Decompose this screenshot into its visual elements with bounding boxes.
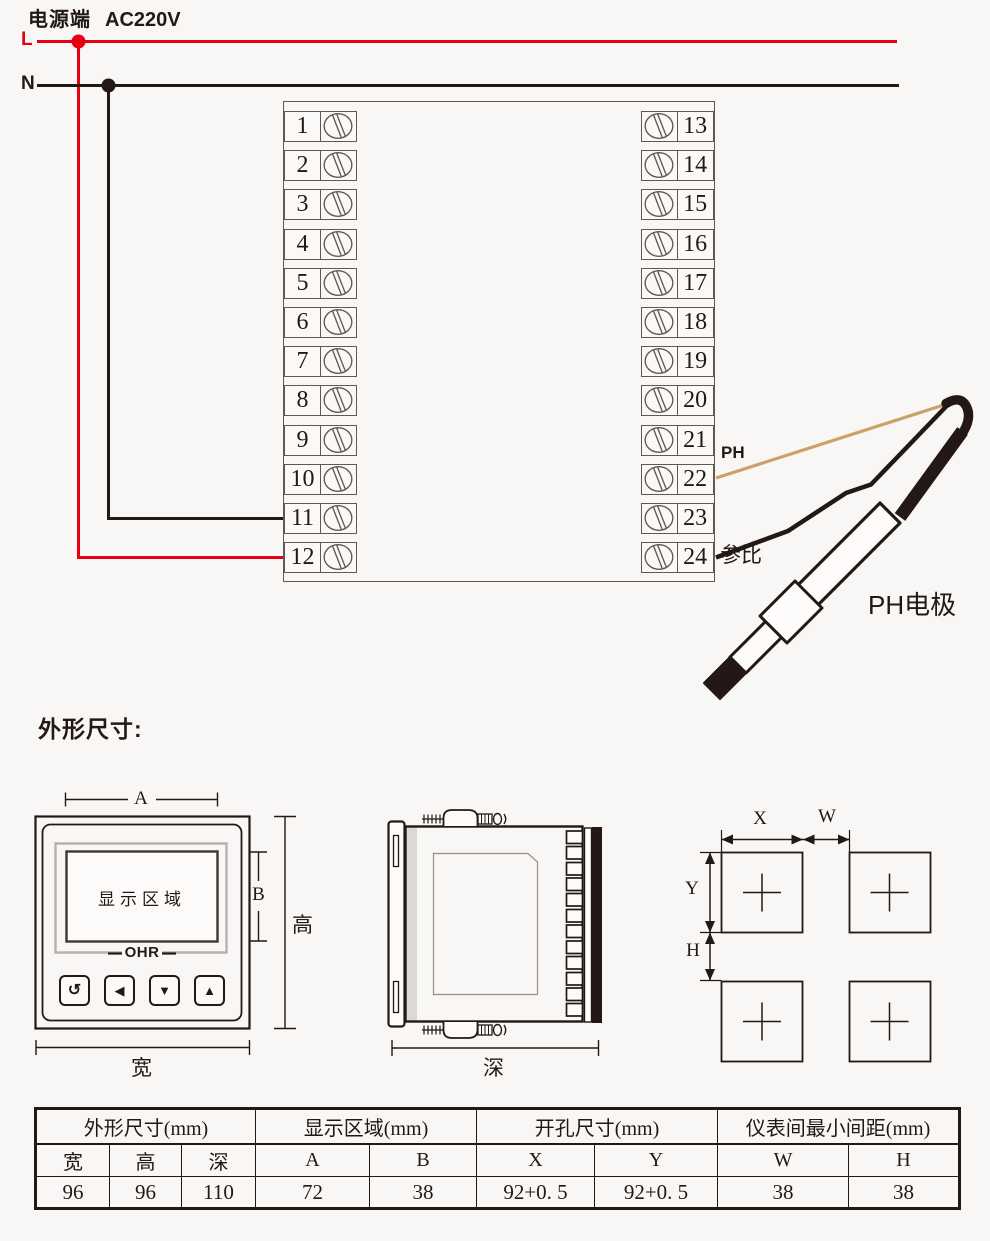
screw-icon (641, 464, 678, 495)
terminal-number: 7 (284, 346, 321, 377)
terminal-number: 5 (284, 268, 321, 299)
col-b: B (370, 1144, 477, 1177)
left-button-icon: ◀ (104, 975, 135, 1006)
val-width: 96 (36, 1177, 110, 1209)
terminal-number: 13 (677, 111, 714, 142)
terminal-number: 1 (284, 111, 321, 142)
col-width: 宽 (36, 1144, 110, 1177)
screw-icon (320, 542, 357, 573)
terminal-number: 6 (284, 307, 321, 338)
screw-icon (641, 385, 678, 416)
power-voltage-text: AC220V (105, 9, 181, 31)
val-a: 72 (256, 1177, 370, 1209)
dim-w-label: W (818, 806, 836, 828)
terminal-number: 12 (284, 542, 321, 573)
screw-icon (641, 111, 678, 142)
terminal-number: 18 (677, 307, 714, 338)
terminal-row: 19 (641, 346, 714, 377)
terminal-row: 9 (284, 425, 357, 456)
terminal-number: 11 (284, 503, 321, 534)
spec-table: 外形尺寸(mm) 显示区域(mm) 开孔尺寸(mm) 仪表间最小间距(mm) 宽… (34, 1107, 961, 1210)
terminal-row: 4 (284, 229, 357, 260)
terminal-number: 8 (284, 385, 321, 416)
screw-icon (320, 385, 357, 416)
table-group-header-row: 外形尺寸(mm) 显示区域(mm) 开孔尺寸(mm) 仪表间最小间距(mm) (36, 1109, 960, 1145)
col-y: Y (595, 1144, 718, 1177)
terminal-row: 17 (641, 268, 714, 299)
col-height: 高 (110, 1144, 182, 1177)
screw-icon (641, 346, 678, 377)
val-height: 96 (110, 1177, 182, 1209)
screw-icon (320, 150, 357, 181)
terminal-number: 2 (284, 150, 321, 181)
terminal-number: 4 (284, 229, 321, 260)
bottom-clamp (422, 1022, 506, 1038)
junction-dot-neutral (102, 79, 116, 93)
terminal-number: 23 (677, 503, 714, 534)
terminal-number: 14 (677, 150, 714, 181)
terminal-row: 18 (641, 307, 714, 338)
ph-electrode-label: PH电极 (868, 585, 956, 622)
group-cutout: 开孔尺寸(mm) (477, 1109, 718, 1145)
terminal-row: 6 (284, 307, 357, 338)
dim-a-label: A (131, 788, 151, 810)
dim-x-label: X (752, 808, 768, 830)
up-button-icon: ▲ (194, 975, 225, 1006)
terminal-row: 12 (284, 542, 357, 573)
front-view-drawing (36, 793, 297, 1056)
depth-label: 深 (483, 1052, 504, 1082)
col-h: H (849, 1144, 960, 1177)
terminal-number: 19 (677, 346, 714, 377)
screw-icon (320, 346, 357, 377)
val-b: 38 (370, 1177, 477, 1209)
screw-icon (320, 189, 357, 220)
screw-icon (641, 542, 678, 573)
reference-wire (716, 404, 949, 558)
col-a: A (256, 1144, 370, 1177)
terminal-row: 21 (641, 425, 714, 456)
terminal-row: 5 (284, 268, 357, 299)
val-h: 38 (849, 1177, 960, 1209)
screw-icon (641, 189, 678, 220)
terminal-number: 24 (677, 542, 714, 573)
terminal-number: 10 (284, 464, 321, 495)
screw-icon (320, 111, 357, 142)
val-x: 92+0. 5 (477, 1177, 595, 1209)
screw-icon (641, 425, 678, 456)
screw-icon (641, 268, 678, 299)
height-label: 高 (292, 909, 313, 939)
reference-wire-label: 参比 (720, 539, 762, 569)
wiring-diagram: 电源端AC220V L N 1 2 3 (0, 0, 990, 720)
terminal-number: 16 (677, 229, 714, 260)
terminal-row: 8 (284, 385, 357, 416)
loop-button-icon: ↺ (59, 975, 90, 1006)
junction-dot-live (72, 35, 86, 49)
screw-icon (641, 229, 678, 260)
col-x: X (477, 1144, 595, 1177)
terminal-row: 2 (284, 150, 357, 181)
brand-logo: OHR (122, 944, 162, 961)
terminal-row: 3 (284, 189, 357, 220)
cutout-center-crosses (743, 874, 909, 1041)
terminal-number: 3 (284, 189, 321, 220)
outline-dimensions-heading: 外形尺寸: (38, 710, 143, 744)
screw-icon (641, 307, 678, 338)
val-y: 92+0. 5 (595, 1177, 718, 1209)
terminal-number: 15 (677, 189, 714, 220)
terminal-row: 1 (284, 111, 357, 142)
screw-icon (320, 503, 357, 534)
line-l-label: L (21, 29, 33, 51)
table-column-header-row: 宽 高 深 A B X Y W H (36, 1144, 960, 1177)
terminal-row: 13 (641, 111, 714, 142)
screw-icon (641, 150, 678, 181)
terminal-number: 17 (677, 268, 714, 299)
line-n-label: N (21, 73, 35, 95)
top-clamp (422, 810, 506, 826)
page: 电源端AC220V L N 1 2 3 (0, 0, 990, 1241)
terminal-row: 20 (641, 385, 714, 416)
power-supply-label: 电源端AC220V (28, 3, 181, 32)
terminal-row: 14 (641, 150, 714, 181)
terminal-row: 7 (284, 346, 357, 377)
down-button-icon: ▼ (149, 975, 180, 1006)
screw-icon (320, 425, 357, 456)
col-depth: 深 (182, 1144, 256, 1177)
terminal-number: 20 (677, 385, 714, 416)
col-w: W (718, 1144, 849, 1177)
screw-icon (320, 268, 357, 299)
dim-b-label: B (249, 884, 268, 906)
terminal-row: 10 (284, 464, 357, 495)
val-w: 38 (718, 1177, 849, 1209)
power-terminal-text: 电源端 (28, 9, 91, 31)
terminal-number: 21 (677, 425, 714, 456)
terminal-number: 9 (284, 425, 321, 456)
dim-h-label: H (685, 940, 701, 962)
group-display: 显示区域(mm) (256, 1109, 477, 1145)
group-outline: 外形尺寸(mm) (36, 1109, 256, 1145)
dim-y-label: Y (684, 878, 700, 900)
terminal-row: 16 (641, 229, 714, 260)
terminal-row: 23 (641, 503, 714, 534)
screw-icon (320, 229, 357, 260)
dim-xw-lines (722, 830, 850, 852)
terminal-row: 11 (284, 503, 357, 534)
cutout-view-drawing (700, 830, 931, 1062)
side-view-drawing (389, 810, 603, 1056)
width-label: 宽 (131, 1052, 152, 1082)
dim-yh-lines (700, 853, 722, 981)
val-depth: 110 (182, 1177, 256, 1209)
screw-icon (320, 307, 357, 338)
ph-wire-label: PH (721, 443, 745, 463)
rear-terminal-strip (567, 831, 583, 1016)
screw-icon (641, 503, 678, 534)
terminal-row: 15 (641, 189, 714, 220)
display-area-label: 显示区域 (67, 885, 217, 910)
group-spacing: 仪表间最小间距(mm) (718, 1109, 960, 1145)
screw-icon (320, 464, 357, 495)
ph-wire (716, 402, 953, 478)
table-values-row: 96 96 110 72 38 92+0. 5 92+0. 5 38 38 (36, 1177, 960, 1209)
terminal-row: 24 (641, 542, 714, 573)
terminal-row: 22 (641, 464, 714, 495)
terminal-number: 22 (677, 464, 714, 495)
